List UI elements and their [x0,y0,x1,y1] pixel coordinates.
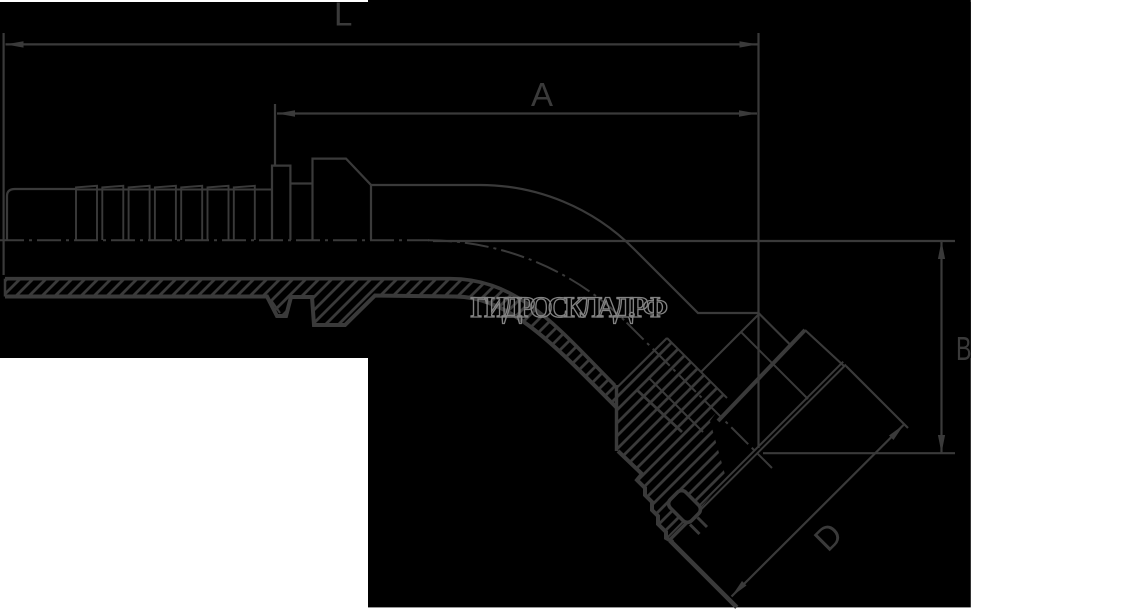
svg-text:B: B [956,330,972,367]
svg-text:ГИДРОСКЛАД.РФ: ГИДРОСКЛАД.РФ [471,292,670,324]
svg-text:L: L [334,0,352,33]
svg-text:A: A [531,76,553,113]
